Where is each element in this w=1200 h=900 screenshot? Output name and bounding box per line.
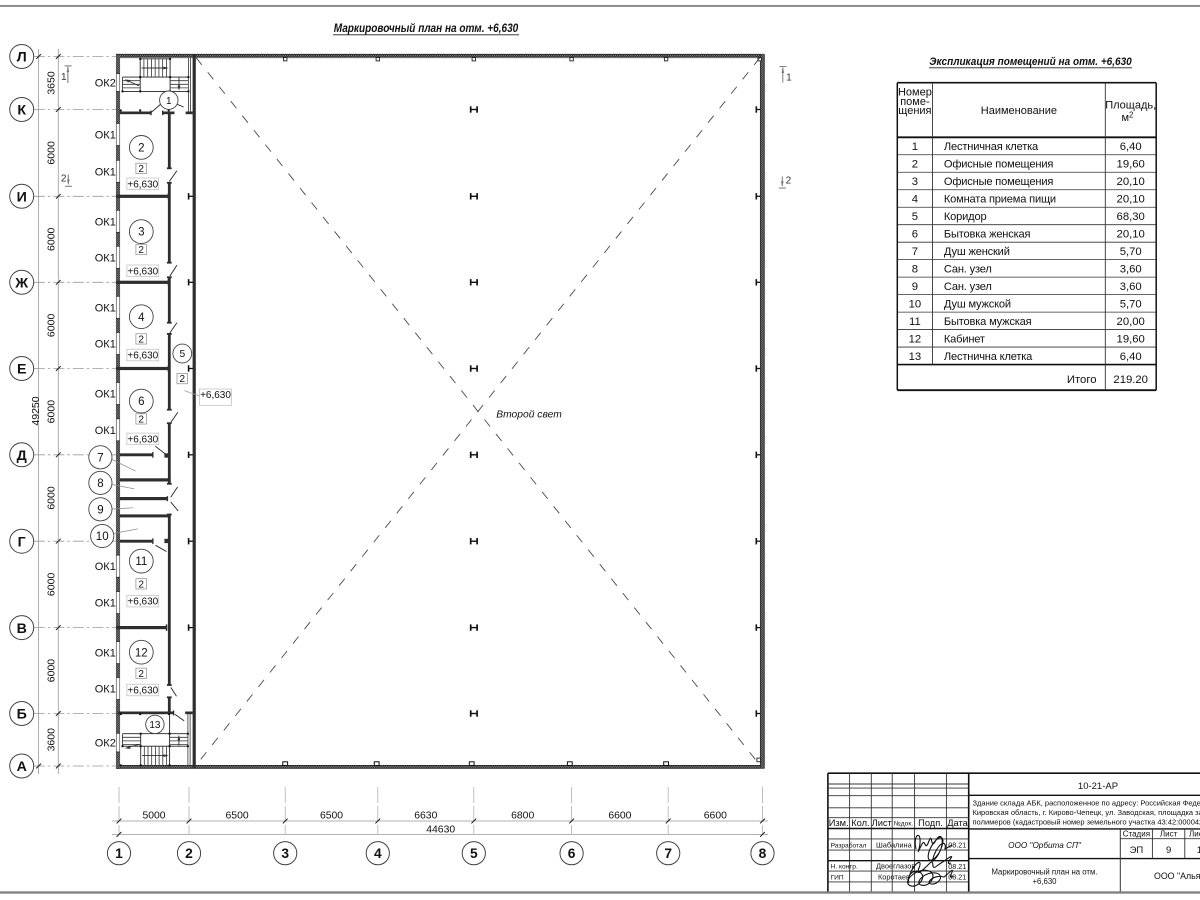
svg-text:ОК1: ОК1 <box>95 166 116 178</box>
svg-text:Изм.: Изм. <box>829 818 849 828</box>
svg-text:Листов: Листов <box>1189 830 1200 839</box>
svg-text:Подп.: Подп. <box>918 818 943 828</box>
svg-text:ОК1: ОК1 <box>95 389 116 401</box>
svg-text:6630: 6630 <box>414 811 437 822</box>
svg-text:1: 1 <box>115 846 123 861</box>
svg-text:6000: 6000 <box>46 227 58 251</box>
svg-text:Г: Г <box>18 534 26 550</box>
svg-text:20,10: 20,10 <box>1117 194 1145 206</box>
svg-text:2: 2 <box>138 164 144 175</box>
svg-text:Лист: Лист <box>1160 830 1178 839</box>
svg-text:1: 1 <box>912 141 918 153</box>
svg-text:Лестнична клетка: Лестнична клетка <box>944 351 1033 363</box>
svg-text:Е: Е <box>17 362 26 378</box>
svg-text:Коридор: Коридор <box>944 211 987 223</box>
svg-text:11: 11 <box>135 556 147 568</box>
svg-text:ОК1: ОК1 <box>95 252 116 264</box>
svg-text:3: 3 <box>281 846 289 861</box>
svg-text:Бытовка мужская: Бытовка мужская <box>944 316 1032 328</box>
svg-text:2: 2 <box>138 335 144 346</box>
svg-text:6: 6 <box>912 229 918 241</box>
svg-text:5: 5 <box>179 349 185 360</box>
svg-text:А: А <box>17 759 27 775</box>
svg-text:ОК1: ОК1 <box>95 216 116 228</box>
svg-text:Дата: Дата <box>947 818 968 828</box>
svg-text:Маркировочный план на отм.: Маркировочный план на отм. <box>991 867 1097 876</box>
svg-text:19,60: 19,60 <box>1117 159 1145 171</box>
svg-text:Д: Д <box>17 448 27 464</box>
svg-text:ОК1: ОК1 <box>95 684 116 696</box>
svg-text:+6,630: +6,630 <box>200 390 231 401</box>
svg-text:8: 8 <box>97 478 103 490</box>
svg-text:ОК1: ОК1 <box>95 339 116 351</box>
svg-text:ОК1: ОК1 <box>95 648 116 660</box>
svg-text:2: 2 <box>180 374 186 385</box>
svg-text:Комната приема пищи: Комната приема пищи <box>944 194 1056 206</box>
svg-text:Экспликация помещений на отм.: Экспликация помещений на отм. +6,630 <box>929 56 1132 68</box>
svg-text:ОК2: ОК2 <box>95 738 116 750</box>
svg-text:6500: 6500 <box>226 811 249 822</box>
svg-text:+6,630: +6,630 <box>127 351 158 362</box>
svg-text:6500: 6500 <box>320 811 343 822</box>
svg-text:3: 3 <box>138 227 144 239</box>
svg-text:3,60: 3,60 <box>1120 264 1142 276</box>
svg-text:7: 7 <box>912 246 918 258</box>
svg-text:Площадь,: Площадь, <box>1105 99 1156 111</box>
svg-text:ГИП: ГИП <box>831 874 844 881</box>
svg-text:5,70: 5,70 <box>1120 298 1142 310</box>
svg-text:7: 7 <box>97 452 103 464</box>
svg-text:Стадия: Стадия <box>1123 830 1150 839</box>
svg-text:+6,630: +6,630 <box>1032 877 1057 886</box>
svg-text:ООО "Альянсгрупп": ООО "Альянсгрупп" <box>1154 871 1200 881</box>
svg-text:Разработал: Разработал <box>831 841 867 849</box>
svg-text:Здание склада АБК, расположенн: Здание склада АБК, расположенное по адре… <box>973 799 1200 808</box>
svg-text:6000: 6000 <box>46 486 58 510</box>
svg-text:6: 6 <box>138 396 144 408</box>
svg-text:9: 9 <box>97 504 103 516</box>
svg-text:2: 2 <box>185 846 193 861</box>
svg-text:2: 2 <box>912 159 918 171</box>
svg-text:ООО "Орбита СП": ООО "Орбита СП" <box>1008 841 1082 850</box>
svg-text:6000: 6000 <box>46 314 58 338</box>
svg-text:3600: 3600 <box>46 728 58 752</box>
svg-text:Н. контр.: Н. контр. <box>831 864 858 871</box>
svg-text:10: 10 <box>909 298 922 310</box>
svg-text:И: И <box>17 190 27 206</box>
svg-text:6000: 6000 <box>46 400 58 424</box>
svg-text:Лестничная клетка: Лестничная клетка <box>944 141 1039 153</box>
svg-text:полимеров (кадастровый номер з: полимеров (кадастровый номер земельного … <box>973 818 1200 827</box>
svg-text:Кировская область, г. Кирово-Ч: Кировская область, г. Кирово-Чепецк, ул.… <box>973 808 1200 817</box>
svg-text:12: 12 <box>909 333 922 345</box>
svg-text:5: 5 <box>912 211 918 223</box>
svg-text:2: 2 <box>786 176 792 187</box>
svg-text:ОК1: ОК1 <box>95 425 116 437</box>
svg-text:6800: 6800 <box>511 811 534 822</box>
svg-text:Офисные помещения: Офисные помещения <box>944 176 1053 188</box>
svg-text:Шабалина: Шабалина <box>876 840 913 849</box>
svg-text:13: 13 <box>149 720 161 731</box>
svg-text:20,10: 20,10 <box>1117 229 1145 241</box>
svg-text:2: 2 <box>138 669 144 680</box>
svg-text:2: 2 <box>138 143 144 155</box>
svg-text:ОК1: ОК1 <box>95 561 116 573</box>
svg-text:Кол.: Кол. <box>851 818 869 828</box>
svg-text:219.20: 219.20 <box>1113 374 1148 386</box>
svg-text:Коротаев: Коротаев <box>878 872 910 881</box>
svg-text:1: 1 <box>166 96 172 107</box>
svg-text:6000: 6000 <box>46 659 58 683</box>
svg-text:+6,630: +6,630 <box>127 179 158 190</box>
svg-text:6000: 6000 <box>46 573 58 597</box>
svg-text:9: 9 <box>912 281 918 293</box>
svg-text:7: 7 <box>664 846 672 861</box>
svg-text:2: 2 <box>138 579 144 590</box>
svg-text:2: 2 <box>61 174 67 185</box>
svg-text:20,00: 20,00 <box>1117 316 1145 328</box>
svg-text:Итого: Итого <box>1067 374 1097 386</box>
svg-text:6600: 6600 <box>608 811 631 822</box>
svg-text:6,40: 6,40 <box>1120 141 1142 153</box>
svg-text:20,10: 20,10 <box>1117 176 1145 188</box>
svg-text:Душ мужской: Душ мужской <box>944 298 1011 310</box>
svg-text:В: В <box>17 621 27 637</box>
svg-text:5000: 5000 <box>142 811 165 822</box>
svg-text:6,40: 6,40 <box>1120 351 1142 363</box>
svg-text:3,60: 3,60 <box>1120 281 1142 293</box>
svg-text:4: 4 <box>912 194 918 206</box>
svg-text:2: 2 <box>138 245 144 256</box>
svg-text:1: 1 <box>61 72 67 83</box>
svg-text:ОК2: ОК2 <box>95 78 116 90</box>
svg-text:5: 5 <box>470 846 478 861</box>
svg-text:1: 1 <box>786 73 792 84</box>
svg-text:3650: 3650 <box>46 71 58 95</box>
svg-text:11: 11 <box>909 316 921 328</box>
svg-text:Сан. узел: Сан. узел <box>944 281 992 293</box>
svg-text:Лист: Лист <box>872 818 893 828</box>
svg-text:Ж: Ж <box>14 276 28 292</box>
svg-text:4: 4 <box>138 312 145 324</box>
svg-text:+6,630: +6,630 <box>127 686 158 697</box>
svg-text:+6,630: +6,630 <box>127 434 158 445</box>
svg-text:Офисные помещения: Офисные помещения <box>944 159 1053 171</box>
svg-text:6000: 6000 <box>46 141 58 165</box>
svg-text:Маркировочный план на отм. +6,: Маркировочный план на отм. +6,630 <box>334 21 519 35</box>
svg-text:6600: 6600 <box>704 811 727 822</box>
svg-text:Наименование: Наименование <box>981 105 1057 117</box>
svg-text:Двоеглазов: Двоеглазов <box>876 862 915 871</box>
svg-text:+6,630: +6,630 <box>127 266 158 277</box>
svg-text:+6,630: +6,630 <box>127 597 158 608</box>
svg-text:19,60: 19,60 <box>1117 333 1145 345</box>
svg-text:2: 2 <box>138 415 144 426</box>
svg-text:4: 4 <box>374 846 382 861</box>
svg-text:9: 9 <box>1166 845 1171 856</box>
svg-text:Л: Л <box>17 50 27 66</box>
svg-text:68,30: 68,30 <box>1117 211 1145 223</box>
svg-text:Душ женский: Душ женский <box>944 246 1010 258</box>
svg-text:6: 6 <box>568 846 576 861</box>
svg-text:10: 10 <box>96 531 109 543</box>
svg-text:3: 3 <box>912 176 918 188</box>
svg-text:44630: 44630 <box>426 824 455 835</box>
svg-text:13: 13 <box>909 351 922 363</box>
svg-text:5,70: 5,70 <box>1120 246 1142 258</box>
svg-text:№док.: №док. <box>894 820 913 827</box>
svg-text:10-21-АР: 10-21-АР <box>1078 781 1118 792</box>
svg-text:щения: щения <box>898 105 931 117</box>
svg-text:ОК1: ОК1 <box>95 130 116 142</box>
svg-text:8: 8 <box>912 264 918 276</box>
svg-text:К: К <box>17 103 26 119</box>
svg-text:ОК1: ОК1 <box>95 302 116 314</box>
svg-text:12: 12 <box>135 647 148 659</box>
svg-text:8: 8 <box>759 846 767 861</box>
svg-text:Второй свет: Второй свет <box>496 410 562 421</box>
svg-text:Сан. узел: Сан. узел <box>944 264 992 276</box>
svg-text:Кабинет: Кабинет <box>944 333 985 345</box>
svg-text:ОК1: ОК1 <box>95 598 116 610</box>
svg-text:Б: Б <box>17 707 27 723</box>
svg-text:Бытовка женская: Бытовка женская <box>944 229 1031 241</box>
svg-text:ЭП: ЭП <box>1130 845 1144 856</box>
svg-text:49250: 49250 <box>30 396 42 425</box>
